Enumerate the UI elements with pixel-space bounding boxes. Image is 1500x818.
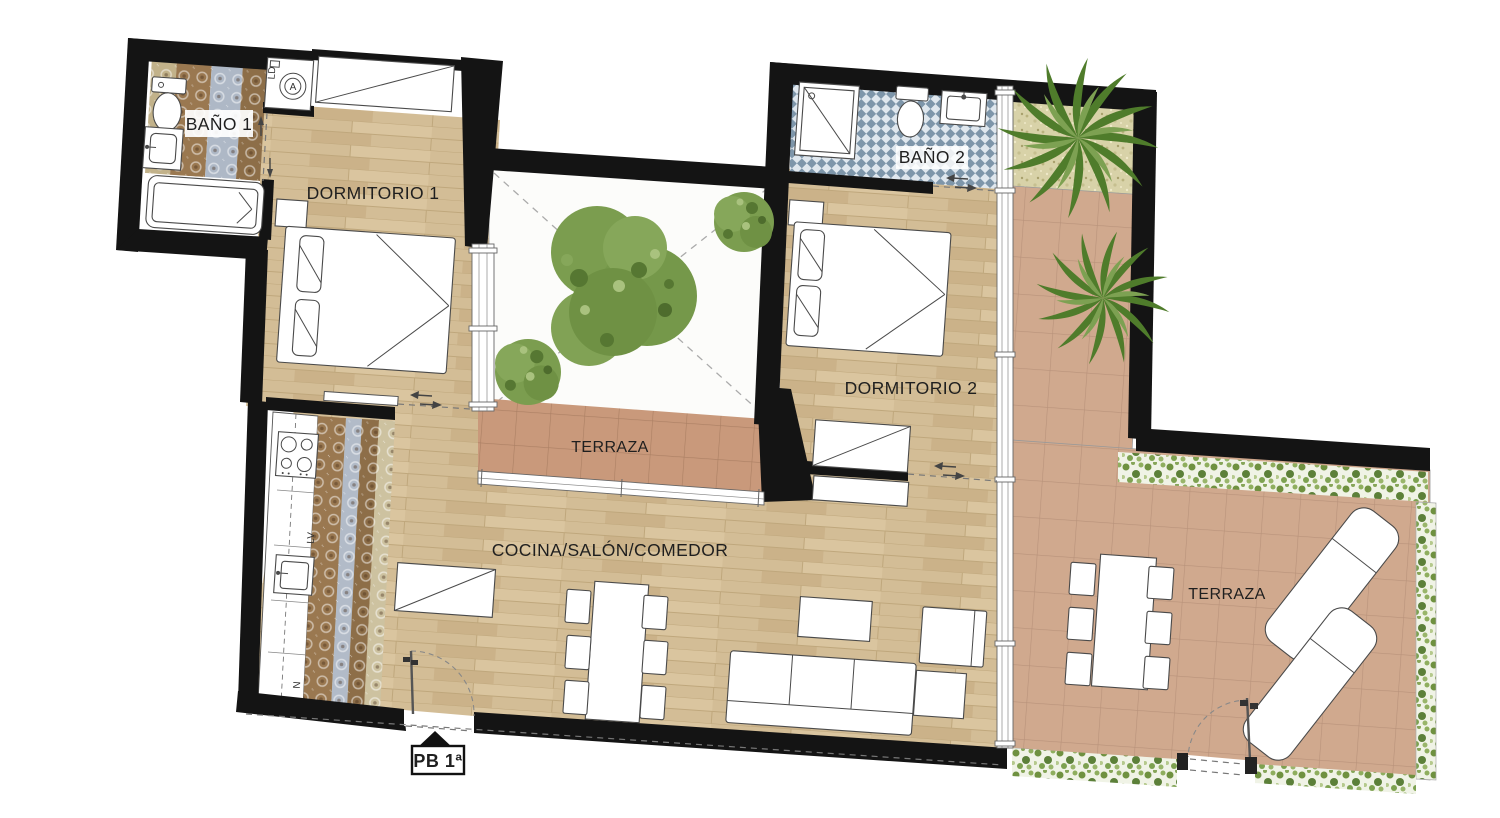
floor-plan-page: BAÑO 1 DORMITORIO 1 BAÑO 2 DORMITORIO 2 … <box>0 0 1500 818</box>
bedroom2-label: DORMITORIO 2 <box>845 378 978 398</box>
entry-label: PB 1ª <box>413 751 462 771</box>
armchair <box>919 607 987 667</box>
floor-plan-drawing: BAÑO 1 DORMITORIO 1 BAÑO 2 DORMITORIO 2 … <box>0 0 1500 818</box>
cooktop <box>276 432 319 479</box>
terrace-label: TERRAZA <box>1188 586 1265 603</box>
terrace-tiles-upper <box>1012 186 1146 452</box>
sideboard <box>394 563 495 618</box>
kitchen-sink <box>274 555 315 596</box>
sink-bath1 <box>143 127 184 171</box>
kitchen-living-label: COCINA/SALÓN/COMEDOR <box>492 539 729 560</box>
courtyard-window <box>469 244 497 411</box>
hedge-right <box>1416 502 1436 780</box>
bedroom1-label: DORMITORIO 1 <box>307 183 440 203</box>
shower-bath2 <box>794 82 859 159</box>
dining-table <box>585 581 648 722</box>
fridge-label: N <box>292 681 303 689</box>
terrace-glazing <box>995 86 1015 748</box>
coffee-table <box>798 597 873 642</box>
bed-bedroom2 <box>786 222 951 357</box>
patio-label: TERRAZA <box>571 439 648 456</box>
bathtub <box>145 175 264 235</box>
nightstand-bedroom1 <box>275 199 308 228</box>
dishwasher-label: LV <box>306 532 318 545</box>
bath1-label: BAÑO 1 <box>186 113 253 134</box>
courtyard-tree-small-2 <box>495 339 561 405</box>
sofa <box>726 651 917 736</box>
bed-bedroom1 <box>276 226 455 374</box>
wardrobe-bedroom1 <box>316 56 455 111</box>
courtyard-tree-small-1 <box>714 192 774 252</box>
laundry-label: LD <box>267 66 279 80</box>
wardrobe-bedroom2 <box>813 420 911 473</box>
sink-bath2 <box>940 91 987 127</box>
washer-letter-label: A <box>290 82 297 93</box>
side-table <box>913 670 966 718</box>
bath2-label: BAÑO 2 <box>899 146 966 167</box>
